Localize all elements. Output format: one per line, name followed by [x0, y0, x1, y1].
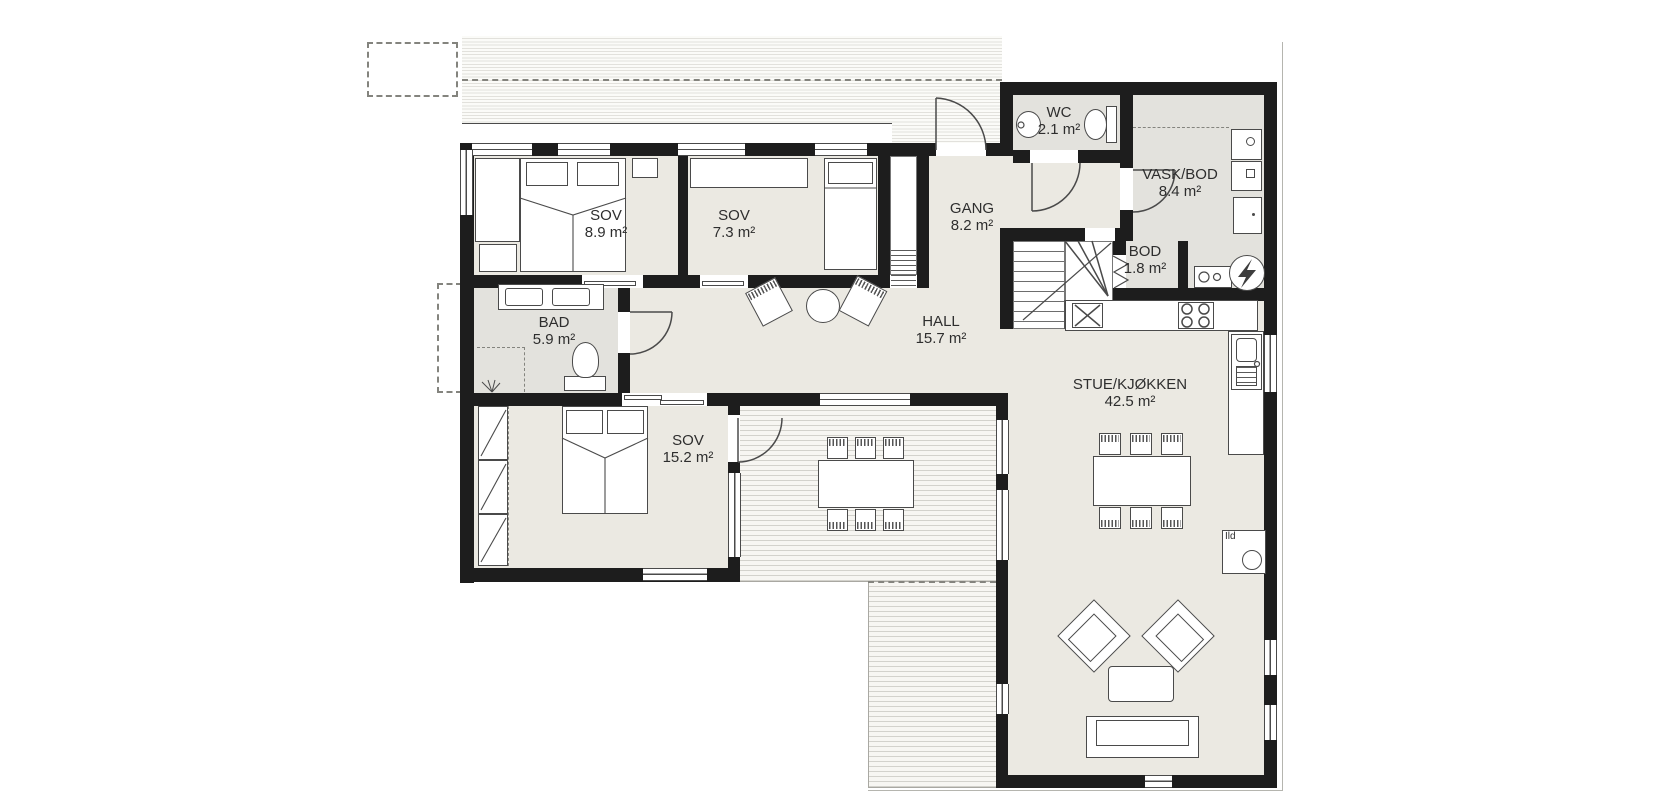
- wall-sov2-east: [878, 156, 890, 275]
- room-area: 7.3 m²: [713, 224, 756, 241]
- vask-sink: [1194, 266, 1232, 288]
- vask-door-opening: [1120, 168, 1133, 210]
- stairs-entry-opening: [1085, 228, 1115, 241]
- sov3-pillow-a: [566, 410, 603, 434]
- wall-east-outer: [1264, 82, 1277, 788]
- room-label-bod: BOD 1.8 m²: [1124, 243, 1167, 277]
- washing-machine-icon: [1246, 137, 1255, 146]
- window-sov3-east: [728, 473, 741, 557]
- room-name: SOV: [585, 207, 628, 224]
- sov2-desk: [690, 158, 808, 188]
- room-area: 5.9 m²: [533, 331, 576, 348]
- window-east-stue-a: [1264, 640, 1277, 675]
- room-label-bad: BAD 5.9 m²: [533, 314, 576, 348]
- window-stue-south: [1145, 775, 1172, 788]
- chair-back: [1132, 520, 1150, 527]
- sov3-wardrobe-b: [478, 460, 508, 514]
- dashed-bad-exterior-rect: [437, 283, 462, 393]
- dining-table: [1093, 456, 1191, 506]
- sov1-pillow-b: [577, 162, 619, 186]
- sofa: [1086, 716, 1199, 758]
- sov1-dresser: [479, 244, 517, 272]
- wall-wc-vask-divider: [1120, 95, 1133, 150]
- chair-back: [1163, 520, 1181, 527]
- room-label-gang: GANG 8.2 m²: [950, 200, 994, 234]
- room-area: 8.2 m²: [950, 217, 994, 234]
- fireplace-flue-circle: [1242, 550, 1262, 570]
- wall-hall-south: [462, 393, 1008, 406]
- porch-slab: [462, 123, 892, 143]
- window-east-stue-b: [1264, 705, 1277, 740]
- room-area: 15.2 m²: [663, 449, 714, 466]
- fireplace-label: Ild: [1225, 531, 1236, 542]
- staircase-treads: [1014, 242, 1064, 328]
- dining-chair-3: [1161, 433, 1183, 455]
- electrical-cabinet-circle: [1229, 255, 1265, 291]
- closet-shelves-hatch: [891, 250, 916, 287]
- room-label-sov1: SOV 8.9 m²: [585, 207, 628, 241]
- room-area: 8.9 m²: [585, 224, 628, 241]
- kitchen-sink-drainer: [1236, 366, 1257, 386]
- cabinet-handle-dot: [1252, 213, 1255, 216]
- armchair-seat: [1068, 613, 1117, 662]
- coffee-table: [1108, 666, 1174, 702]
- chair-back: [829, 522, 846, 529]
- window-east-kitchen: [1264, 335, 1277, 392]
- roof-edge-bottom: [868, 790, 1283, 791]
- deck-chair-5: [855, 509, 876, 531]
- chair-back: [1163, 435, 1181, 442]
- deck-chair-3: [883, 437, 904, 459]
- window-hall-south: [820, 393, 910, 406]
- wc-door-opening: [1030, 150, 1078, 163]
- deck-chair-4: [827, 509, 848, 531]
- dishwasher: [1072, 303, 1103, 328]
- bad-toilet-tank: [564, 376, 606, 391]
- sov1-nightstand: [632, 158, 658, 178]
- dining-chair-4: [1099, 507, 1121, 529]
- sov3-wardrobe: [478, 406, 508, 460]
- room-area: 8.4 m²: [1142, 183, 1218, 200]
- room-area: 1.8 m²: [1124, 260, 1167, 277]
- chair-back: [1101, 520, 1119, 527]
- room-name: VASK/BOD: [1142, 166, 1218, 183]
- chair-back: [857, 522, 874, 529]
- deck-chair-1: [827, 437, 848, 459]
- window-west-sov1: [460, 150, 473, 215]
- hall-round-table: [806, 289, 840, 323]
- room-name: GANG: [950, 200, 994, 217]
- fireplace: Ild: [1222, 530, 1266, 574]
- wall-entry-step: [1000, 82, 1013, 156]
- bad-toilet-bowl: [572, 342, 599, 378]
- sov3-deck-door-opening: [728, 415, 740, 462]
- deck-chair-2: [855, 437, 876, 459]
- dashed-extension-rect: [367, 42, 458, 97]
- wall-stairs-west: [1000, 228, 1013, 329]
- roof-edge-right: [1282, 42, 1283, 790]
- entrance-door-opening: [936, 143, 986, 156]
- chair-back: [1101, 435, 1119, 442]
- deck-chair-6: [883, 509, 904, 531]
- wall-sov1-sov2-divider: [678, 156, 688, 275]
- sov3-sliding-door-panel-a: [624, 395, 662, 400]
- dining-chair-6: [1161, 507, 1183, 529]
- window-sov2-a: [678, 143, 745, 156]
- sov2-sliding-door-panel: [702, 281, 744, 286]
- water-heater-cabinet: [1233, 197, 1262, 234]
- room-label-hall: HALL 15.7 m²: [916, 313, 967, 347]
- bad-shower-dashed: [477, 347, 525, 392]
- room-area: 42.5 m²: [1073, 393, 1187, 410]
- kitchen-sink-bowl: [1236, 338, 1257, 362]
- chair-back: [857, 439, 874, 446]
- wc-toilet-tank: [1106, 106, 1117, 143]
- window-stue-west-a: [996, 420, 1009, 474]
- window-stue-west-b: [996, 490, 1009, 560]
- window-stue-west-c: [996, 684, 1009, 714]
- terrace-dashed-edge: [868, 581, 996, 583]
- bad-sink-b: [552, 288, 590, 306]
- bad-sink-a: [505, 288, 543, 306]
- sov2-pillow: [828, 162, 873, 184]
- room-name: BOD: [1124, 243, 1167, 260]
- dryer-icon: [1246, 169, 1255, 178]
- room-name: SOV: [663, 432, 714, 449]
- room-label-stue: STUE/KJØKKEN 42.5 m²: [1073, 376, 1187, 410]
- floor-gang-east: [1013, 163, 1120, 228]
- sov1-wardrobe: [475, 158, 520, 242]
- chair-back: [885, 439, 902, 446]
- room-name: STUE/KJØKKEN: [1073, 376, 1187, 393]
- room-name: WC: [1038, 104, 1081, 121]
- sov3-sliding-door-panel-b: [660, 400, 704, 405]
- stove: [1178, 302, 1214, 329]
- wc-toilet-bowl: [1084, 109, 1107, 140]
- dining-chair-1: [1099, 433, 1121, 455]
- floorplan-canvas: Ild: [0, 0, 1670, 800]
- sov3-pillow-b: [607, 410, 644, 434]
- chair-back: [885, 522, 902, 529]
- room-name: SOV: [713, 207, 756, 224]
- sov3-wardrobe-c: [478, 514, 508, 566]
- sov3-wardrobe-front-dashed: [508, 406, 509, 566]
- porch-roof-hatch-right: [892, 123, 1002, 143]
- wall-closet-east: [917, 156, 929, 275]
- room-label-sov2: SOV 7.3 m²: [713, 207, 756, 241]
- wall-stue-south: [996, 775, 1277, 788]
- window-sov1-a: [472, 143, 532, 156]
- vask-dashed-line: [1133, 127, 1229, 128]
- sov1-pillow-a: [526, 162, 568, 186]
- room-area: 2.1 m²: [1038, 121, 1081, 138]
- window-sov2-b: [815, 143, 867, 156]
- deck-table: [818, 460, 914, 508]
- chair-back: [829, 439, 846, 446]
- window-sov3-south: [643, 568, 707, 581]
- room-area: 15.7 m²: [916, 330, 967, 347]
- room-label-wc: WC 2.1 m²: [1038, 104, 1081, 138]
- dining-chair-5: [1130, 507, 1152, 529]
- bad-door-opening: [618, 312, 630, 353]
- chair-back: [1132, 435, 1150, 442]
- room-name: BAD: [533, 314, 576, 331]
- dining-chair-2: [1130, 433, 1152, 455]
- porch-dashed-line: [462, 79, 1002, 81]
- wall-north-block: [1000, 82, 1277, 95]
- room-name: HALL: [916, 313, 967, 330]
- room-label-sov3: SOV 15.2 m²: [663, 432, 714, 466]
- window-sov1-b: [558, 143, 610, 156]
- sofa-seat: [1096, 720, 1189, 746]
- room-label-vaskbod: VASK/BOD 8.4 m²: [1142, 166, 1218, 200]
- terrace-lower-deck: [868, 582, 996, 788]
